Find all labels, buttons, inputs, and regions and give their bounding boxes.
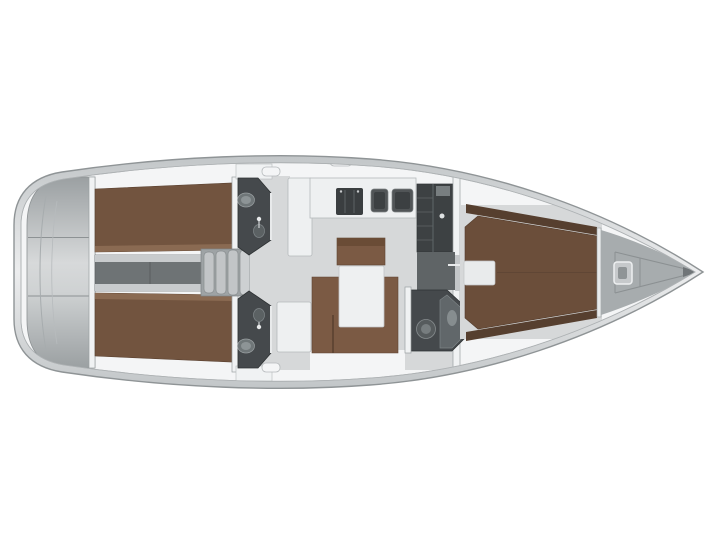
forward-cabin: Forward owner cabin with island berth xyxy=(460,204,614,341)
aft-berth-port xyxy=(95,183,232,252)
aft-cabin-port: Aft double cabin (port) xyxy=(95,177,238,253)
transom-locker: Stern / transom locker xyxy=(27,177,95,368)
hatch-icon xyxy=(518,358,536,367)
stern-bulkhead xyxy=(89,177,95,368)
shower-basin xyxy=(447,310,457,326)
salon-cabinet xyxy=(277,302,311,352)
wardrobe-knob xyxy=(440,214,445,219)
toilet-starboard xyxy=(254,309,265,322)
dinette-table xyxy=(339,266,384,327)
shower-wall xyxy=(405,287,411,353)
aft-cabin-starboard-wall xyxy=(232,292,238,372)
aft-berth-starboard xyxy=(95,293,232,362)
berth-foot-step xyxy=(464,261,495,285)
hatch-icon xyxy=(523,172,541,181)
companionway-steps: Companionway steps xyxy=(201,249,253,296)
engine-compartment: Engine compartment xyxy=(95,255,203,291)
aft-cabin-port-wall xyxy=(232,177,238,253)
faucet xyxy=(389,191,392,194)
hatch-icon xyxy=(262,167,280,176)
bow-bulkhead xyxy=(597,228,601,317)
page-background: Stern / transom locker Aft double cabin … xyxy=(0,0,728,546)
head-port: Head / WC (port) xyxy=(236,164,272,255)
yacht-floorplan: Stern / transom locker Aft double cabin … xyxy=(0,0,728,546)
galley-cabinet xyxy=(288,178,312,256)
hatch-icon xyxy=(262,363,280,372)
fwd-bulkhead-upper xyxy=(453,176,460,256)
